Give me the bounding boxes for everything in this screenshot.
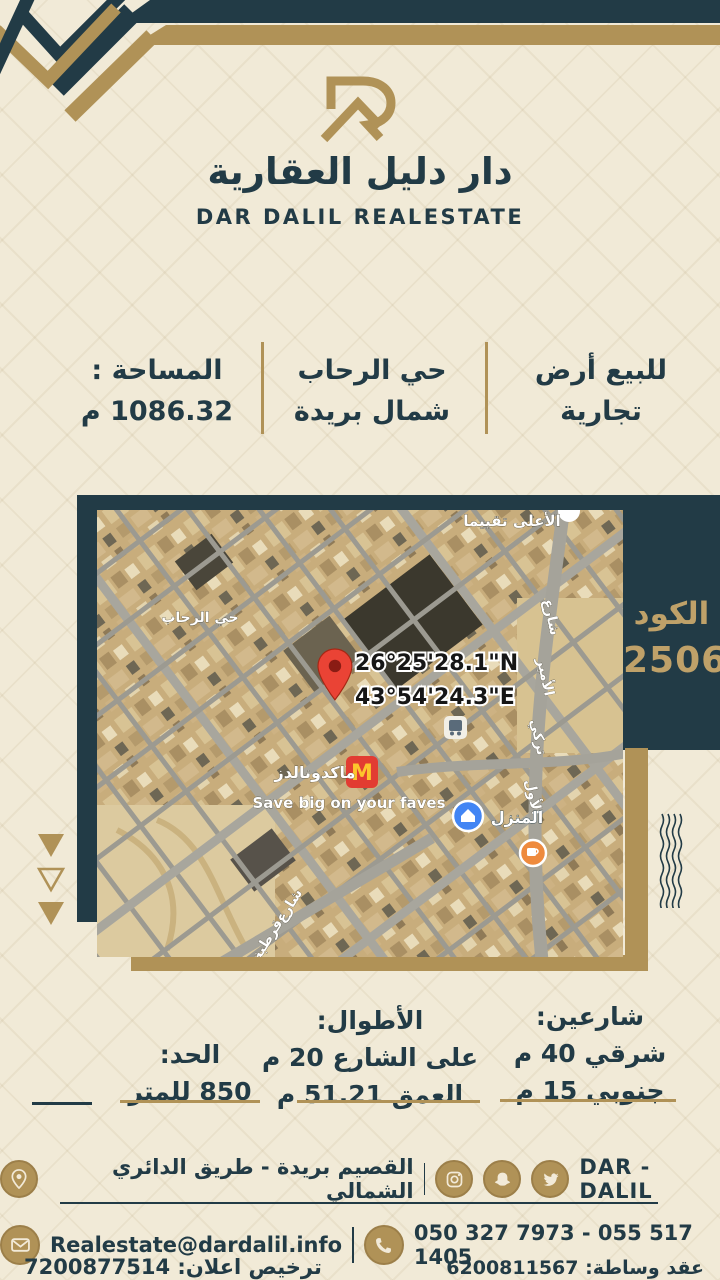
- listing-location: حي الرحاب شمال بريدة: [266, 350, 478, 432]
- snapchat-icon: [494, 1171, 511, 1188]
- map-label-district: حي الرحاب: [161, 610, 238, 626]
- email-icon: [11, 1238, 30, 1252]
- location-pin-badge[interactable]: [0, 1160, 38, 1198]
- bus-stop-icon: [444, 716, 467, 739]
- brand-logo: [318, 68, 402, 148]
- flyer-page: دار دليل العقارية DAR DALIL REALESTATE ل…: [0, 0, 720, 1280]
- instagram-icon: [446, 1171, 463, 1188]
- code-badge-label: الكود: [623, 596, 720, 632]
- listing-location-line1: حي الرحاب: [266, 350, 478, 391]
- underline-streets: [500, 1099, 676, 1102]
- footer-divider-line: [60, 1202, 658, 1204]
- detail-streets: شارعين: شرقي 40 م جنوبي 15 م: [470, 998, 710, 1109]
- detail-lengths-line1: على الشارع 20 م: [255, 1039, 485, 1076]
- map-coordinates-lat: 26°25'28.1"N: [355, 651, 518, 676]
- arrows-decoration: [36, 833, 66, 935]
- twitter-icon: [541, 1171, 559, 1187]
- twitter-badge[interactable]: [531, 1160, 569, 1198]
- detail-streets-title: شارعين:: [470, 998, 710, 1035]
- home-icon: [453, 801, 483, 831]
- map-image[interactable]: الأعلى تقييما حي الرحاب شارع الأمير تركي…: [97, 510, 623, 957]
- cafe-icon: [520, 840, 546, 866]
- footer-divider-2: [352, 1227, 354, 1263]
- brand-name-english: DAR DALIL REALESTATE: [0, 205, 720, 229]
- map-label-promo: Save big on your faves: [252, 794, 445, 812]
- phone-badge[interactable]: [364, 1225, 404, 1265]
- map-label-top-rated: الأعلى تقييما: [463, 512, 560, 530]
- phone-icon: [375, 1237, 392, 1254]
- detail-lengths-line2: العمق 51.21 م: [255, 1076, 485, 1113]
- underline-lengths: [297, 1100, 480, 1103]
- listing-type-line2: تجارية: [490, 391, 712, 432]
- listing-location-line2: شمال بريدة: [266, 391, 478, 432]
- listing-type-line1: للبيع أرض: [490, 350, 712, 391]
- detail-streets-line1: شرقي 40 م: [470, 1035, 710, 1072]
- detail-streets-line2: جنوبي 15 م: [470, 1072, 710, 1109]
- footer-divider-1: [424, 1163, 426, 1195]
- summary-divider-2: [261, 342, 264, 434]
- footer-brand: DAR - DALIL: [579, 1155, 720, 1203]
- footer-email[interactable]: Realestate@dardalil.info: [50, 1233, 342, 1257]
- detail-lengths-title: الأطوال:: [255, 1002, 485, 1039]
- map-label-mcdonalds: ماكدونالدز: [274, 763, 356, 782]
- map-shadow-gold-bottom: [131, 955, 648, 971]
- footer-contract: عقد وساطة: 6200811567: [446, 1257, 704, 1279]
- dash-decoration: [32, 1102, 92, 1105]
- detail-limit-title: الحد:: [95, 1036, 285, 1073]
- map-shadow-gold-right: [625, 748, 648, 963]
- detail-limit-line1: 850 للمتر: [95, 1073, 285, 1110]
- listing-area-value: 1086.32 م: [58, 391, 256, 432]
- footer-license: ترخيص اعلان: 7200877514: [24, 1255, 322, 1279]
- listing-area-label: المساحة :: [58, 350, 256, 391]
- detail-limit: الحد: 850 للمتر: [95, 1036, 285, 1110]
- instagram-badge[interactable]: [435, 1160, 473, 1198]
- snapchat-badge[interactable]: [483, 1160, 521, 1198]
- brand-name-arabic: دار دليل العقارية: [0, 150, 720, 193]
- summary-divider-1: [485, 342, 488, 434]
- detail-lengths: الأطوال: على الشارع 20 م العمق 51.21 م: [255, 1002, 485, 1113]
- listing-type: للبيع أرض تجارية: [490, 350, 712, 432]
- underline-limit: [120, 1100, 260, 1103]
- code-badge: الكود 2506: [623, 596, 720, 681]
- footer-address: القصيم بريدة - طريق الدائري الشمالي: [48, 1155, 414, 1203]
- footer-row-location: القصيم بريدة - طريق الدائري الشمالي DAR …: [0, 1155, 720, 1203]
- waves-decoration: [659, 812, 685, 908]
- code-badge-value: 2506: [623, 640, 720, 681]
- listing-area: المساحة : 1086.32 م: [58, 350, 256, 432]
- map-svg: الأعلى تقييما حي الرحاب شارع الأمير تركي…: [97, 510, 623, 957]
- location-icon: [10, 1169, 28, 1189]
- map-label-home: المنزل: [491, 808, 544, 827]
- map-coordinates-lng: 43°54'24.3"E: [355, 685, 515, 710]
